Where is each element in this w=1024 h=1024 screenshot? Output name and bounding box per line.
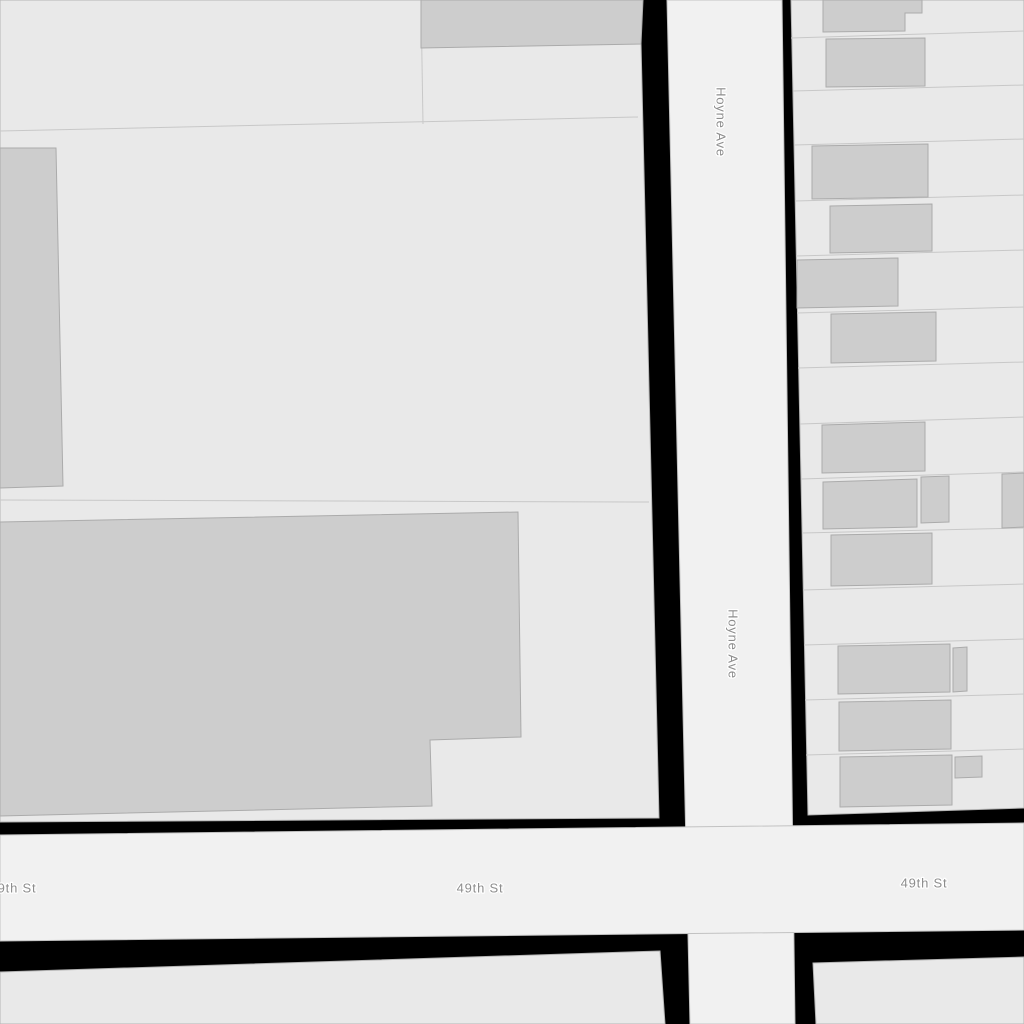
building-ne-6 bbox=[831, 312, 936, 363]
building-ne-2 bbox=[826, 38, 925, 87]
block-southeast bbox=[813, 957, 1024, 1024]
building-ne-10b bbox=[953, 647, 967, 692]
building-ne-8c bbox=[1002, 473, 1024, 528]
building-ne-12 bbox=[840, 755, 952, 807]
map-viewport[interactable]: Hoyne AveHoyne Ave49th St49th St49th St bbox=[0, 0, 1024, 1024]
building-ne-12b bbox=[955, 756, 982, 778]
building-ne-8 bbox=[823, 479, 917, 529]
building-nw-tall bbox=[0, 148, 63, 488]
street-label: 49th St bbox=[457, 881, 504, 896]
building-ne-5 bbox=[797, 258, 898, 308]
street-label: 49th St bbox=[0, 881, 36, 896]
building-nw-top bbox=[421, 0, 643, 48]
building-ne-8b bbox=[921, 476, 949, 523]
building-ne-10 bbox=[838, 644, 950, 694]
building-ne-3 bbox=[812, 144, 928, 199]
street-label: Hoyne Ave bbox=[726, 609, 741, 679]
building-ne-7 bbox=[822, 422, 925, 473]
building-ne-4 bbox=[830, 204, 932, 253]
street-49th-st bbox=[0, 823, 1024, 941]
building-ne-9 bbox=[831, 533, 932, 586]
street-label: 49th St bbox=[901, 876, 948, 891]
building-ne-11 bbox=[839, 700, 951, 751]
map-canvas[interactable]: Hoyne AveHoyne Ave49th St49th St49th St bbox=[0, 0, 1024, 1024]
street-label: Hoyne Ave bbox=[714, 87, 729, 157]
